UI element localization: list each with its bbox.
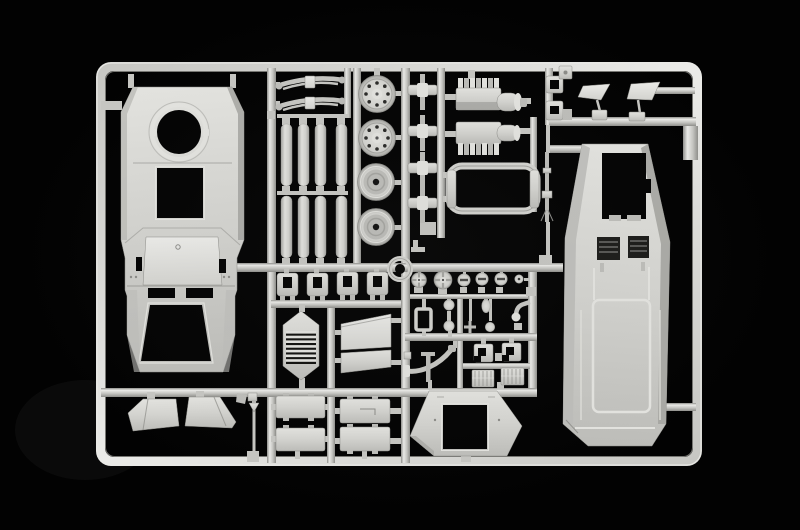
photo-stage: Photograph of an injection-moulded model… [0,0,800,530]
sprue-photo: Photograph of an injection-moulded model… [0,0,800,530]
cab-front-panel [563,144,670,446]
glacis-wedge-panels [341,314,391,373]
hull-superstructure-panel [121,87,244,372]
louvered-grille [283,311,319,380]
